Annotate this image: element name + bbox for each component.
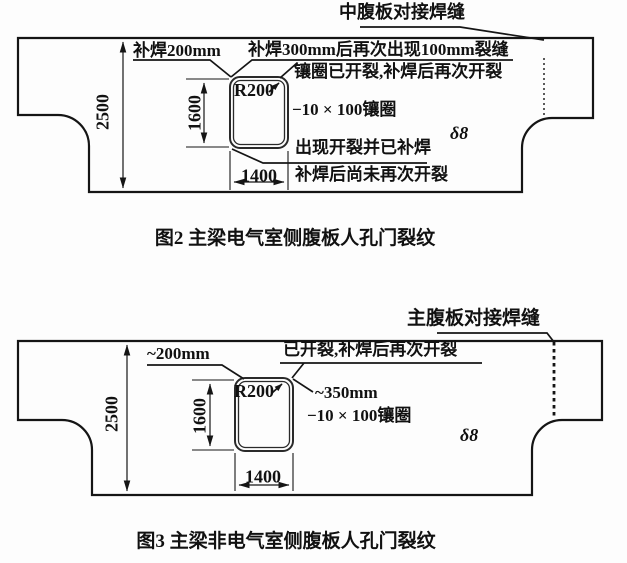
fig3-cracked-leader <box>292 363 304 378</box>
fig2-dim-1400-value: 1400 <box>241 167 277 186</box>
fig3-crack350-note: ~350mm <box>315 384 378 402</box>
fig3-plate-thickness-label: δ8 <box>460 426 478 445</box>
fig2-repair200-note: 补焊200mm <box>133 42 221 60</box>
fig3-caption: 图3 主梁非电气室侧腹板人孔门裂纹 <box>136 532 435 552</box>
fig3-dim-2500-value: 2500 <box>103 396 122 432</box>
fig2-plate-thickness-label: δ8 <box>450 124 468 143</box>
fig2-no-recrack-note: 补焊后尚未再次开裂 <box>295 166 448 184</box>
fig3-dim-1400-value: 1400 <box>245 468 281 487</box>
fig3-dim-1600-value: 1600 <box>191 398 210 434</box>
technical-diagram-page: 中腹板对接焊缝 补焊200mm 补焊300mm后再次出现100mm裂缝 镶圈已开… <box>0 0 627 563</box>
diagram-linework <box>0 0 627 563</box>
fig2-dim-2500-value: 2500 <box>94 94 113 130</box>
fig2-weld-seam-label: 中腹板对接焊缝 <box>339 3 465 22</box>
fig3-corner-radius-label: R200 <box>234 382 274 401</box>
fig3-crack200-note: ~200mm <box>147 345 210 363</box>
fig2-repair300-note: 补焊300mm后再次出现100mm裂缝 <box>248 41 509 59</box>
fig2-ring-cracked-note: 镶圈已开裂,补焊后再次开裂 <box>294 63 502 81</box>
fig2-corner-radius-label: R200 <box>234 81 274 100</box>
fig3-crack200-leader <box>147 365 244 379</box>
fig2-crack-repaired-note: 出现开裂并已补焊 <box>295 139 431 157</box>
fig2-dim-1600-value: 1600 <box>186 95 205 131</box>
fig3-ring-spec-label: −10 × 100镶圈 <box>307 407 411 425</box>
fig2-repair200-leader <box>133 60 231 77</box>
fig3-cracked-note: 已开裂,补焊后再次开裂 <box>283 341 457 359</box>
fig3-weld-seam-label: 主腹板对接焊缝 <box>407 309 540 329</box>
fig3-crack350-leader <box>293 379 313 392</box>
fig2-ring-spec-label: −10 × 100镶圈 <box>292 101 396 119</box>
fig2-caption: 图2 主梁电气室侧腹板人孔门裂纹 <box>155 229 435 249</box>
